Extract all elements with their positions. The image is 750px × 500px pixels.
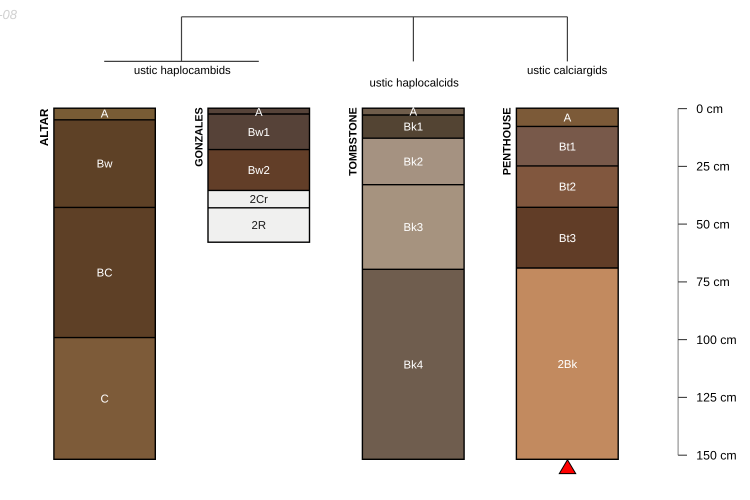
svg-text:2Bk: 2Bk <box>558 359 578 371</box>
svg-text:Bw1: Bw1 <box>248 127 270 139</box>
svg-text:125 cm: 125 cm <box>696 391 736 405</box>
svg-text:A: A <box>255 107 263 119</box>
svg-text:Bt2: Bt2 <box>559 182 576 194</box>
svg-text:ustic haplocambids: ustic haplocambids <box>134 65 231 77</box>
svg-text:-08: -08 <box>0 7 18 22</box>
svg-text:Bk2: Bk2 <box>403 157 423 169</box>
svg-text:A: A <box>409 107 417 119</box>
svg-text:A: A <box>564 112 572 124</box>
svg-text:Bk4: Bk4 <box>403 359 423 371</box>
svg-text:Bt1: Bt1 <box>559 141 576 153</box>
svg-text:ustic calciargids: ustic calciargids <box>527 65 608 77</box>
svg-text:BC: BC <box>97 268 113 280</box>
svg-text:2Cr: 2Cr <box>250 194 269 206</box>
svg-text:Bw2: Bw2 <box>248 165 270 177</box>
svg-text:Bk1: Bk1 <box>403 122 423 134</box>
svg-text:Bw: Bw <box>97 159 114 171</box>
svg-text:2R: 2R <box>252 220 267 232</box>
svg-text:100 cm: 100 cm <box>696 333 736 347</box>
svg-text:A: A <box>101 109 109 121</box>
svg-text:C: C <box>100 394 108 406</box>
svg-text:0 cm: 0 cm <box>696 102 723 116</box>
svg-text:Bk3: Bk3 <box>403 222 423 234</box>
svg-text:75 cm: 75 cm <box>696 275 730 289</box>
svg-text:TOMBSTONE: TOMBSTONE <box>348 107 360 176</box>
svg-text:25 cm: 25 cm <box>696 160 730 174</box>
svg-text:ustic haplocalcids: ustic haplocalcids <box>370 77 460 89</box>
svg-text:Bt3: Bt3 <box>559 233 576 245</box>
svg-text:GONZALES: GONZALES <box>193 107 205 166</box>
svg-text:PENTHOUSE: PENTHOUSE <box>502 108 514 176</box>
svg-text:50 cm: 50 cm <box>696 217 730 231</box>
svg-text:ALTAR: ALTAR <box>38 108 51 146</box>
svg-text:150 cm: 150 cm <box>696 448 736 462</box>
